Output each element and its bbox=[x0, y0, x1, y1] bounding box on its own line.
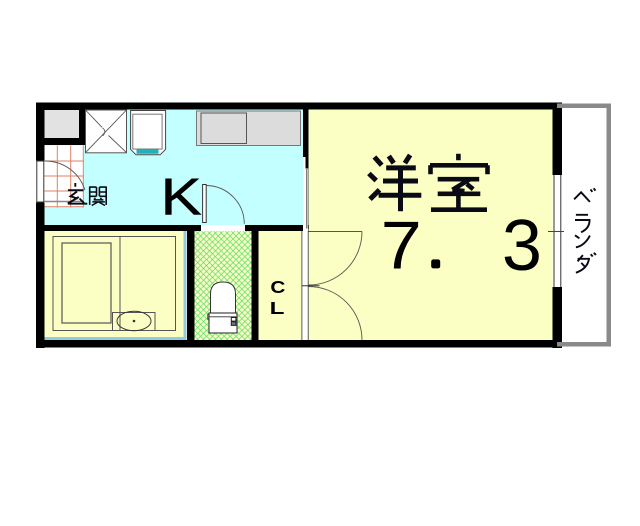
svg-text:L: L bbox=[270, 299, 285, 318]
svg-text:K: K bbox=[161, 169, 202, 226]
svg-text:7: 7 bbox=[381, 208, 422, 284]
svg-text:3: 3 bbox=[502, 204, 542, 285]
svg-text:C: C bbox=[270, 279, 285, 298]
